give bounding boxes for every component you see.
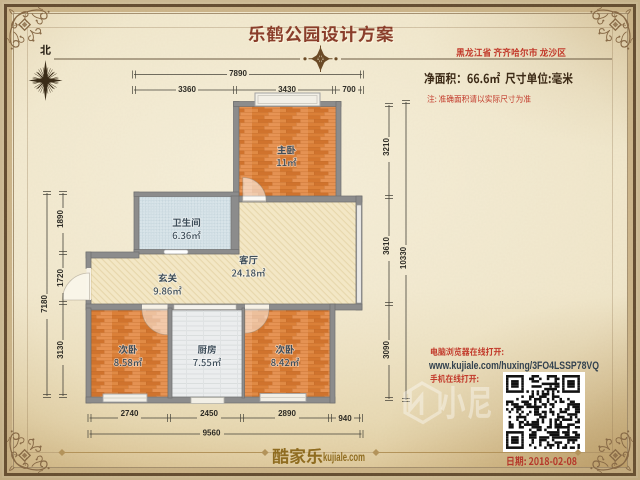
svg-text:10330: 10330 bbox=[399, 246, 408, 269]
svg-text:700: 700 bbox=[342, 85, 356, 94]
svg-text:7180: 7180 bbox=[40, 295, 49, 313]
svg-text:3210: 3210 bbox=[382, 138, 391, 156]
svg-text:3130: 3130 bbox=[56, 341, 65, 359]
svg-text:7890: 7890 bbox=[229, 69, 247, 78]
svg-text:3090: 3090 bbox=[382, 341, 391, 359]
svg-text:3360: 3360 bbox=[178, 85, 196, 94]
svg-text:kujiale.com: kujiale.com bbox=[323, 450, 365, 464]
svg-text:9560: 9560 bbox=[203, 429, 221, 438]
svg-text:2450: 2450 bbox=[200, 409, 218, 418]
svg-text:2740: 2740 bbox=[121, 409, 139, 418]
svg-text:3430: 3430 bbox=[278, 85, 296, 94]
svg-text:1890: 1890 bbox=[56, 210, 65, 228]
svg-text:940: 940 bbox=[338, 414, 352, 423]
svg-text:2890: 2890 bbox=[278, 409, 296, 418]
svg-text:3610: 3610 bbox=[382, 237, 391, 255]
svg-text:1720: 1720 bbox=[56, 269, 65, 287]
svg-text:www.kujiale.com/huxing/3FO4LSS: www.kujiale.com/huxing/3FO4LSSP78VQ bbox=[428, 360, 599, 372]
